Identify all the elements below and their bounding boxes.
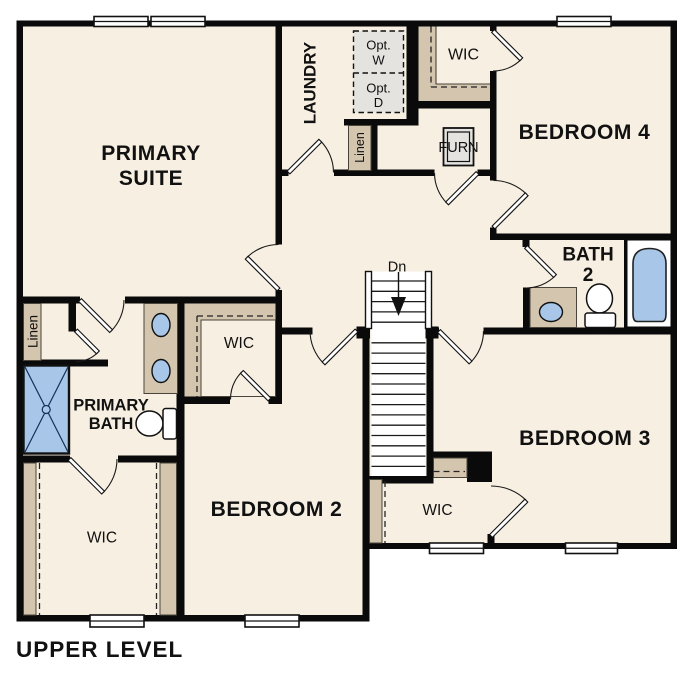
svg-text:D: D	[374, 95, 383, 110]
svg-text:Linen: Linen	[353, 132, 367, 163]
svg-text:BATH: BATH	[562, 245, 613, 266]
svg-text:PRIMARY: PRIMARY	[73, 397, 148, 415]
svg-text:LAUNDRY: LAUNDRY	[301, 41, 320, 124]
svg-text:BEDROOM 3: BEDROOM 3	[519, 427, 651, 450]
svg-text:SUITE: SUITE	[119, 167, 183, 190]
svg-text:FURN: FURN	[438, 140, 478, 156]
svg-text:BEDROOM 2: BEDROOM 2	[211, 498, 343, 521]
svg-text:Dn: Dn	[388, 260, 407, 276]
svg-text:Opt.: Opt.	[366, 38, 391, 53]
svg-text:Linen: Linen	[25, 315, 40, 348]
svg-text:PRIMARY: PRIMARY	[101, 142, 201, 165]
svg-text:WIC: WIC	[422, 502, 452, 519]
svg-text:WIC: WIC	[87, 530, 117, 547]
svg-text:BEDROOM 4: BEDROOM 4	[519, 121, 651, 144]
svg-text:W: W	[372, 53, 385, 68]
svg-text:2: 2	[583, 265, 594, 286]
svg-text:UPPER LEVEL: UPPER LEVEL	[16, 637, 183, 662]
svg-text:BATH: BATH	[89, 415, 134, 433]
svg-text:Opt.: Opt.	[366, 81, 391, 96]
svg-text:WIC: WIC	[224, 335, 254, 352]
svg-text:WIC: WIC	[448, 47, 479, 64]
